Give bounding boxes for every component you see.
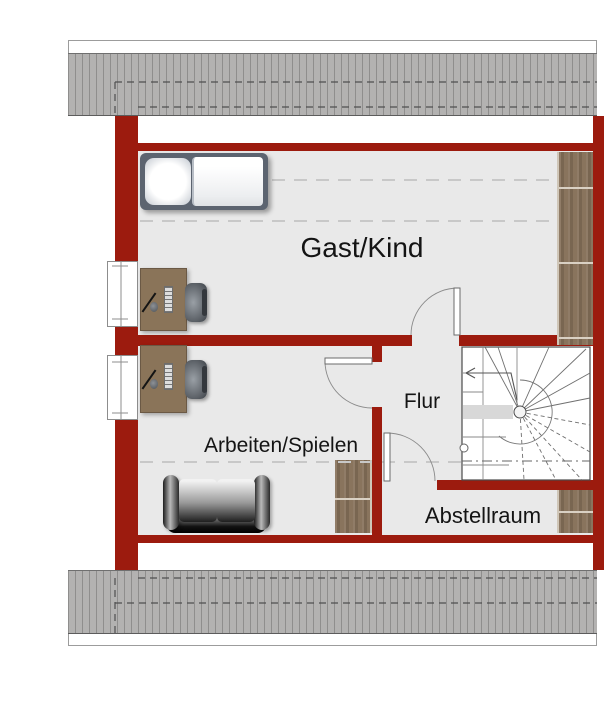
sofa-armrest <box>163 475 179 530</box>
sofa-armrest <box>254 475 270 530</box>
stair-landing <box>463 405 513 419</box>
roof-overhang-top <box>68 53 597 116</box>
keyboard-icon <box>164 363 173 390</box>
shelf-divider <box>559 511 593 513</box>
wardrobe <box>557 152 593 345</box>
keyboard-icon <box>164 286 173 313</box>
sofa <box>163 473 270 533</box>
shelf-divider <box>559 337 593 339</box>
stair-winder-lines <box>485 347 590 480</box>
desk-gast-kind <box>140 268 187 331</box>
staircase <box>460 347 590 480</box>
shelf-divider <box>559 262 593 264</box>
stair-treads <box>462 347 517 480</box>
door-opening-gast-kind <box>412 335 459 346</box>
mouse-icon <box>150 302 158 312</box>
bed-pillow <box>145 158 191 205</box>
door-opening-arbeiten <box>372 362 382 407</box>
floor-plan: Gast/Kind Arbeiten/Spielen Flur Abstellr… <box>0 0 604 706</box>
wall-left-pier <box>115 327 138 355</box>
stair-newel-post <box>514 406 526 418</box>
shelf-divider <box>559 187 593 189</box>
window-lower <box>107 355 138 420</box>
wall-left-upper <box>115 116 138 261</box>
roof-overhang-bottom <box>68 570 597 634</box>
sofa-cushion <box>179 479 217 522</box>
wall-bottom <box>137 535 604 543</box>
bed <box>140 153 268 210</box>
wall-left-lower <box>115 420 138 570</box>
door-opening-abstellraum <box>382 480 437 490</box>
cabinet-arbeiten <box>335 460 372 533</box>
office-chair <box>185 283 207 322</box>
wall-stub-flur <box>372 346 382 362</box>
wall-flur-vertical <box>372 407 382 543</box>
room-label-flur: Flur <box>404 390 440 414</box>
stair-direction-arrow <box>466 368 517 400</box>
room-label-arbeiten-spielen: Arbeiten/Spielen <box>204 434 358 458</box>
window-upper <box>107 261 138 327</box>
sofa-cushion <box>217 479 255 522</box>
shelf-divider <box>335 498 370 500</box>
desk-arbeiten <box>140 345 187 413</box>
stair-walk-line <box>499 380 552 444</box>
wall-abstellraum-top <box>437 480 604 490</box>
room-label-abstellraum: Abstellraum <box>425 503 541 529</box>
wall-top <box>137 143 604 151</box>
room-label-gast-kind: Gast/Kind <box>301 232 424 264</box>
bed-duvet <box>192 157 263 206</box>
cabinet-abstellraum <box>557 490 593 533</box>
mouse-icon <box>150 379 158 389</box>
office-chair <box>185 360 207 399</box>
